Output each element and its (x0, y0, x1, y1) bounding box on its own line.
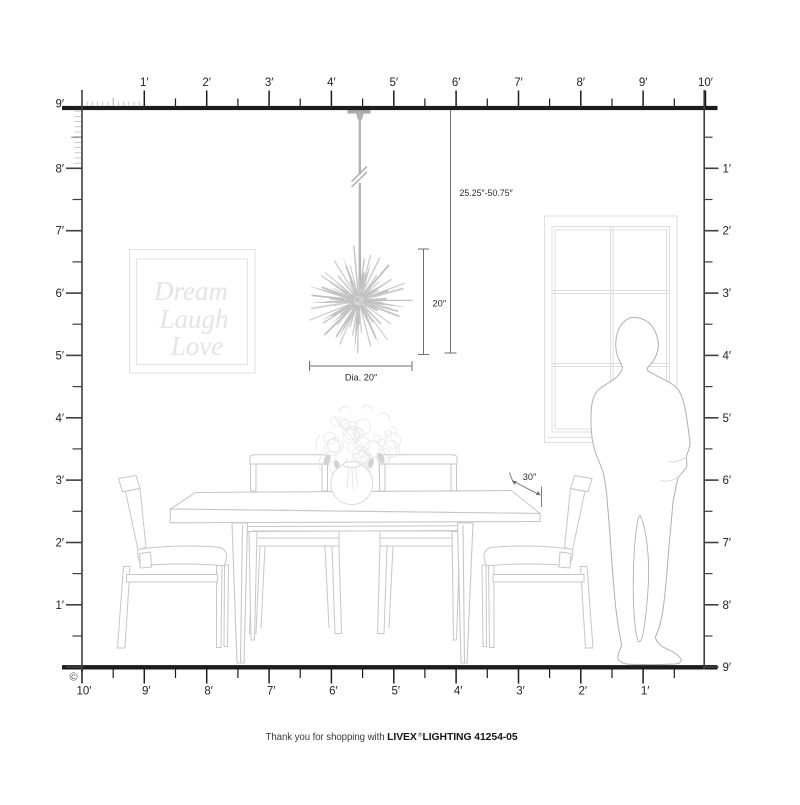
svg-text:5′: 5′ (55, 350, 64, 362)
svg-text:2′: 2′ (723, 226, 732, 238)
svg-text:4′: 4′ (723, 350, 732, 362)
svg-text:1′: 1′ (140, 77, 149, 89)
svg-text:9′: 9′ (55, 99, 64, 111)
svg-text:2′: 2′ (579, 686, 588, 698)
svg-text:Laugh: Laugh (158, 304, 228, 334)
svg-text:25.25″-50.75″: 25.25″-50.75″ (460, 188, 513, 198)
svg-text:7′: 7′ (267, 686, 276, 698)
svg-text:10′: 10′ (77, 686, 92, 698)
svg-text:1′: 1′ (641, 686, 650, 698)
svg-text:3′: 3′ (516, 686, 525, 698)
svg-text:5′: 5′ (390, 77, 399, 89)
svg-text:©: © (70, 672, 78, 684)
svg-text:10′: 10′ (698, 77, 713, 89)
svg-text:4′: 4′ (454, 686, 463, 698)
svg-text:6′: 6′ (452, 77, 461, 89)
svg-text:3′: 3′ (723, 288, 732, 300)
svg-text:8′: 8′ (204, 686, 213, 698)
svg-text:1′: 1′ (55, 600, 64, 612)
svg-text:8′: 8′ (577, 77, 586, 89)
svg-text:Dream: Dream (153, 276, 228, 306)
svg-text:9′: 9′ (723, 662, 732, 674)
svg-text:7′: 7′ (55, 226, 64, 238)
svg-text:9′: 9′ (142, 686, 151, 698)
svg-text:5′: 5′ (392, 686, 401, 698)
svg-text:8′: 8′ (723, 600, 732, 612)
svg-text:4′: 4′ (327, 77, 336, 89)
svg-text:9′: 9′ (639, 77, 648, 89)
svg-text:Dia. 20″: Dia. 20″ (345, 373, 378, 383)
svg-text:3′: 3′ (265, 77, 274, 89)
svg-text:30″: 30″ (523, 472, 537, 482)
svg-text:3′: 3′ (55, 475, 64, 487)
svg-text:6′: 6′ (55, 288, 64, 300)
svg-text:Thank you for shopping with LI: Thank you for shopping with LIVEX®LIGHTI… (266, 731, 518, 743)
svg-text:1′: 1′ (723, 163, 732, 175)
svg-text:6′: 6′ (723, 475, 732, 487)
svg-text:8′: 8′ (55, 163, 64, 175)
svg-text:7′: 7′ (723, 538, 732, 550)
svg-text:5′: 5′ (723, 413, 732, 425)
svg-text:20″: 20″ (433, 299, 447, 309)
svg-text:6′: 6′ (329, 686, 338, 698)
svg-text:7′: 7′ (514, 77, 523, 89)
svg-text:2′: 2′ (202, 77, 211, 89)
svg-text:2′: 2′ (55, 538, 64, 550)
svg-text:Love: Love (170, 331, 224, 361)
svg-text:4′: 4′ (55, 413, 64, 425)
